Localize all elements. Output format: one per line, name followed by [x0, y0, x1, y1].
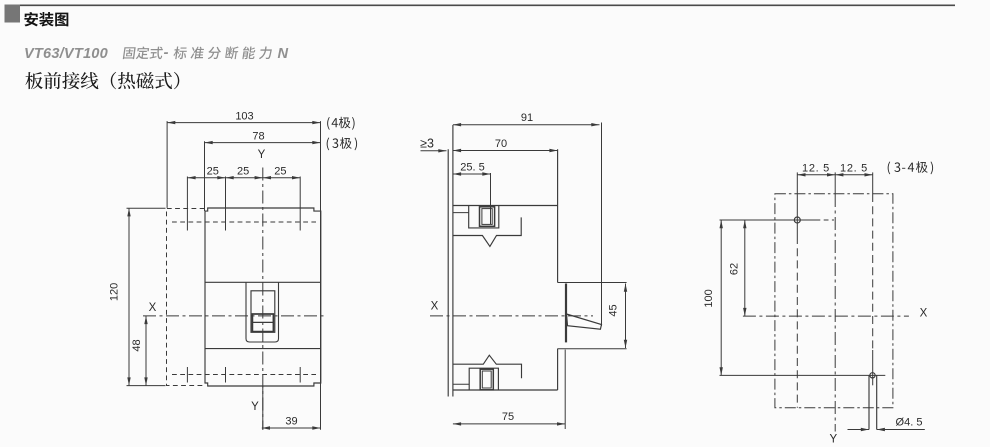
svg-text:91: 91 [521, 112, 533, 124]
svg-text:25: 25 [274, 166, 286, 178]
svg-text:N: N [278, 46, 289, 62]
svg-text:70: 70 [495, 138, 507, 150]
svg-text:48: 48 [131, 339, 143, 351]
svg-text:62: 62 [728, 263, 740, 275]
svg-text:25: 25 [237, 166, 249, 178]
svg-text:12. 5: 12. 5 [802, 163, 830, 175]
svg-text:VT63/VT100: VT63/VT100 [24, 46, 108, 62]
svg-text:103: 103 [235, 110, 253, 122]
svg-text:120: 120 [109, 283, 121, 301]
svg-text:39: 39 [285, 416, 297, 428]
svg-text:≥3: ≥3 [420, 136, 434, 150]
svg-text:45: 45 [608, 304, 620, 316]
svg-text:Y: Y [251, 401, 259, 413]
svg-text:X: X [431, 301, 439, 313]
svg-text:75: 75 [502, 411, 514, 423]
svg-text:X: X [920, 308, 928, 320]
svg-text:25. 5: 25. 5 [460, 161, 484, 173]
svg-text:78: 78 [252, 130, 264, 142]
svg-text:-: - [164, 44, 169, 61]
svg-text:Y: Y [829, 433, 837, 445]
svg-text:X: X [149, 302, 157, 314]
svg-text:25: 25 [207, 166, 219, 178]
svg-text:100: 100 [703, 289, 715, 307]
svg-text:Ø4. 5: Ø4. 5 [896, 417, 923, 429]
svg-text:12. 5: 12. 5 [840, 163, 868, 175]
svg-text:Y: Y [258, 149, 266, 161]
